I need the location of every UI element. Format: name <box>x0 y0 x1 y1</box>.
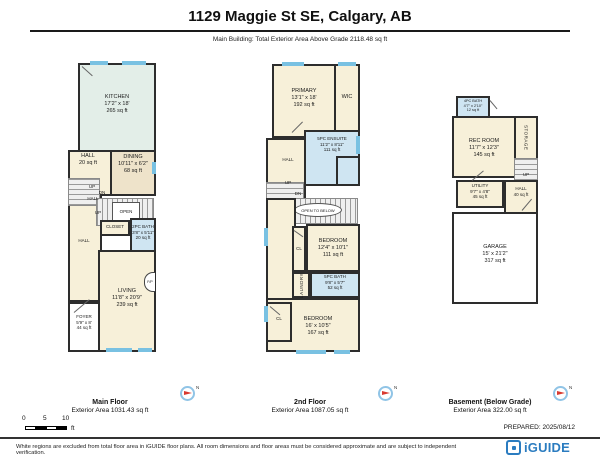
room-ensuite-wc <box>336 156 360 186</box>
room-name: LIVING <box>98 288 156 295</box>
room-name: REC ROOM <box>452 138 516 145</box>
room-area: 167 sq ft <box>282 330 354 337</box>
floor-plan-page: 1129 Maggie St SE, Calgary, AB Main Buil… <box>0 0 600 461</box>
room-wic-label: WIC <box>334 94 360 101</box>
compass-needle <box>184 391 192 395</box>
room-dims: 15' x 21'2" <box>452 251 538 258</box>
compass-north-label: N <box>394 385 397 390</box>
room-kitchen-label: KITCHEN 17'2" x 18' 265 sq ft <box>78 94 156 115</box>
room-area: 52 sq ft <box>310 285 360 291</box>
room-name: HALL <box>70 153 106 160</box>
window <box>296 350 326 354</box>
iguide-logo-text: iGUIDE <box>524 440 570 455</box>
floor-area: Exterior Area 1087.05 sq ft <box>245 407 375 414</box>
stair-up2-label: UP <box>90 210 106 216</box>
room-dining-label: DINING 10'11" x 6'2" 68 sq ft <box>110 154 156 175</box>
room-dims: 16' x 10'5" <box>282 323 354 330</box>
stairs-up <box>514 158 538 182</box>
basement-caption: Basement (Below Grade) Exterior Area 322… <box>425 399 555 414</box>
basement-plan: 4PC BATH 4'7" x 2'10" 12 sq ft REC ROOM … <box>448 94 543 309</box>
compass-north-label: N <box>569 385 572 390</box>
room-name: PRIMARY <box>272 88 336 95</box>
room-area: 68 sq ft <box>110 168 156 175</box>
footer-divider <box>0 437 600 439</box>
room-area: 192 sq ft <box>272 102 336 109</box>
second-floor-caption: 2nd Floor Exterior Area 1087.05 sq ft <box>245 399 375 414</box>
room-area: 44 sq ft <box>68 325 100 331</box>
iguide-logo-icon <box>506 440 521 455</box>
room-2pc-bath-label: 2PC BATH 3'8" x 5'11" 20 sq ft <box>130 224 156 241</box>
scale-bar <box>25 426 67 430</box>
room-basement-bath-label: 4PC BATH 4'7" x 2'10" 12 sq ft <box>456 99 490 113</box>
title-divider <box>30 30 570 32</box>
building-area-subtitle: Main Building: Total Exterior Area Above… <box>0 36 600 43</box>
second-floor-plan: OPEN TO BELOW PRIMARY 13'1" x 18' 192 sq… <box>262 60 362 356</box>
room-area: 317 sq ft <box>452 258 538 265</box>
room-dims: 11'7" x 12'3" <box>452 145 516 152</box>
compass-icon: N <box>378 386 393 401</box>
room-area: 111 sq ft <box>304 147 360 153</box>
open-to-below-oval: OPEN TO BELOW <box>294 203 342 217</box>
closet1-label: CL <box>292 246 306 252</box>
room-dims: 13'1" x 18' <box>272 95 336 102</box>
page-title: 1129 Maggie St SE, Calgary, AB <box>0 8 600 25</box>
room-dims: 17'2" x 18' <box>78 101 156 108</box>
room-area: 239 sq ft <box>98 302 156 309</box>
window <box>264 228 268 246</box>
main-floor-caption: Main Floor Exterior Area 1031.43 sq ft <box>45 399 175 414</box>
main-floor-plan: F/P KITCHEN 17'2" x 18' 265 sq ft HALL 2… <box>66 60 160 356</box>
window <box>106 348 132 352</box>
room-foyer-label: FOYER 5'9" x 8' 44 sq ft <box>68 314 100 331</box>
room-name: BEDROOM <box>282 316 354 323</box>
window <box>90 61 108 65</box>
room-bedroom1-label: BEDROOM 12'4" x 10'1" 111 sq ft <box>306 238 360 259</box>
floor-name: Basement (Below Grade) <box>425 399 555 406</box>
room-name: GARAGE <box>452 244 538 251</box>
compass-needle <box>557 391 565 395</box>
window <box>334 350 350 354</box>
compass-icon: N <box>180 386 195 401</box>
room-basement-hall-label: HALL 40 sq ft <box>504 186 538 197</box>
window <box>338 62 356 66</box>
window <box>282 62 304 66</box>
stair-up-label: UP <box>514 172 538 178</box>
room-hall-upper-label: HALL 20 sq ft <box>70 153 106 167</box>
scale-tick-10: 10 <box>62 415 69 422</box>
room-area: 12 sq ft <box>456 108 490 113</box>
room-name: DINING <box>110 154 156 161</box>
room-ensuite-label: 5PC ENSUITE 11'2" x 8'11" 111 sq ft <box>304 136 360 153</box>
fireplace-label: F/P <box>147 280 152 284</box>
room-name: 2PC BATH <box>130 224 156 230</box>
room-garage-label: GARAGE 15' x 21'2" 317 sq ft <box>452 244 538 265</box>
storage-text: STORAGE <box>524 125 529 150</box>
stair-dn-label: DN <box>290 191 306 197</box>
scale-unit: ft <box>71 425 75 432</box>
room-storage-label: STORAGE <box>514 116 538 160</box>
hall-label: HALL <box>268 157 308 163</box>
room-area: 111 sq ft <box>306 252 360 259</box>
scale-tick-0: 0 <box>22 415 26 422</box>
scale-segment <box>46 426 57 430</box>
window <box>122 61 146 65</box>
room-dims: 11'8" x 20'9" <box>98 295 156 302</box>
room-5pc-bath-label: 5PC BATH 9'8" x 5'7" 52 sq ft <box>310 274 360 291</box>
room-living-label: LIVING 11'8" x 20'9" 239 sq ft <box>98 288 156 309</box>
floor-area: Exterior Area 1031.43 sq ft <box>45 407 175 414</box>
room-name: KITCHEN <box>78 94 156 101</box>
stair-dn-label: DN <box>94 190 110 196</box>
stair-open-label: OPEN <box>112 209 140 215</box>
scale-segment <box>25 426 36 430</box>
room-closet-label: CLOSET <box>100 224 130 230</box>
room-area: 45 sq ft <box>456 194 504 200</box>
prepared-date: PREPARED: 2025/08/12 <box>430 424 575 431</box>
scale-tick-5: 5 <box>43 415 47 422</box>
disclaimer-text: White regions are excluded from total fl… <box>16 444 486 456</box>
scale-segment <box>36 426 47 430</box>
hall-mid-label: HALL <box>80 196 106 202</box>
floor-name: Main Floor <box>45 399 175 406</box>
room-primary-label: PRIMARY 13'1" x 18' 192 sq ft <box>272 88 336 109</box>
iguide-logo: iGUIDE <box>506 440 570 455</box>
floor-area: Exterior Area 322.00 sq ft <box>425 407 555 414</box>
room-utility-label: UTILITY 9'7" x 4'8" 45 sq ft <box>456 183 504 200</box>
floor-name: 2nd Floor <box>245 399 375 406</box>
compass-icon: N <box>553 386 568 401</box>
room-area: 20 sq ft <box>130 235 156 241</box>
hall-lower-label: HALL <box>68 238 100 244</box>
room-name: BEDROOM <box>306 238 360 245</box>
room-bedroom2-label: BEDROOM 16' x 10'5" 167 sq ft <box>282 316 354 337</box>
room-area: 265 sq ft <box>78 108 156 115</box>
room-dims: 10'11" x 6'2" <box>110 161 156 168</box>
room-area: 40 sq ft <box>504 192 538 198</box>
compass-north-label: N <box>196 385 199 390</box>
laundry-text: LAUNDRY <box>299 273 304 298</box>
stair-up-label: UP <box>84 184 100 190</box>
room-laundry-label: LAUNDRY <box>292 272 310 298</box>
room-area: 145 sq ft <box>452 152 516 159</box>
room-dims: 12'4" x 10'1" <box>306 245 360 252</box>
door-line <box>490 100 498 109</box>
compass-needle <box>382 391 390 395</box>
room-area: 20 sq ft <box>70 160 106 167</box>
window <box>138 348 152 352</box>
scale-segment <box>57 426 68 430</box>
stair-up-label: UP <box>280 180 296 186</box>
iguide-logo-dot <box>512 446 516 450</box>
room-rec-label: REC ROOM 11'7" x 12'3" 145 sq ft <box>452 138 516 159</box>
